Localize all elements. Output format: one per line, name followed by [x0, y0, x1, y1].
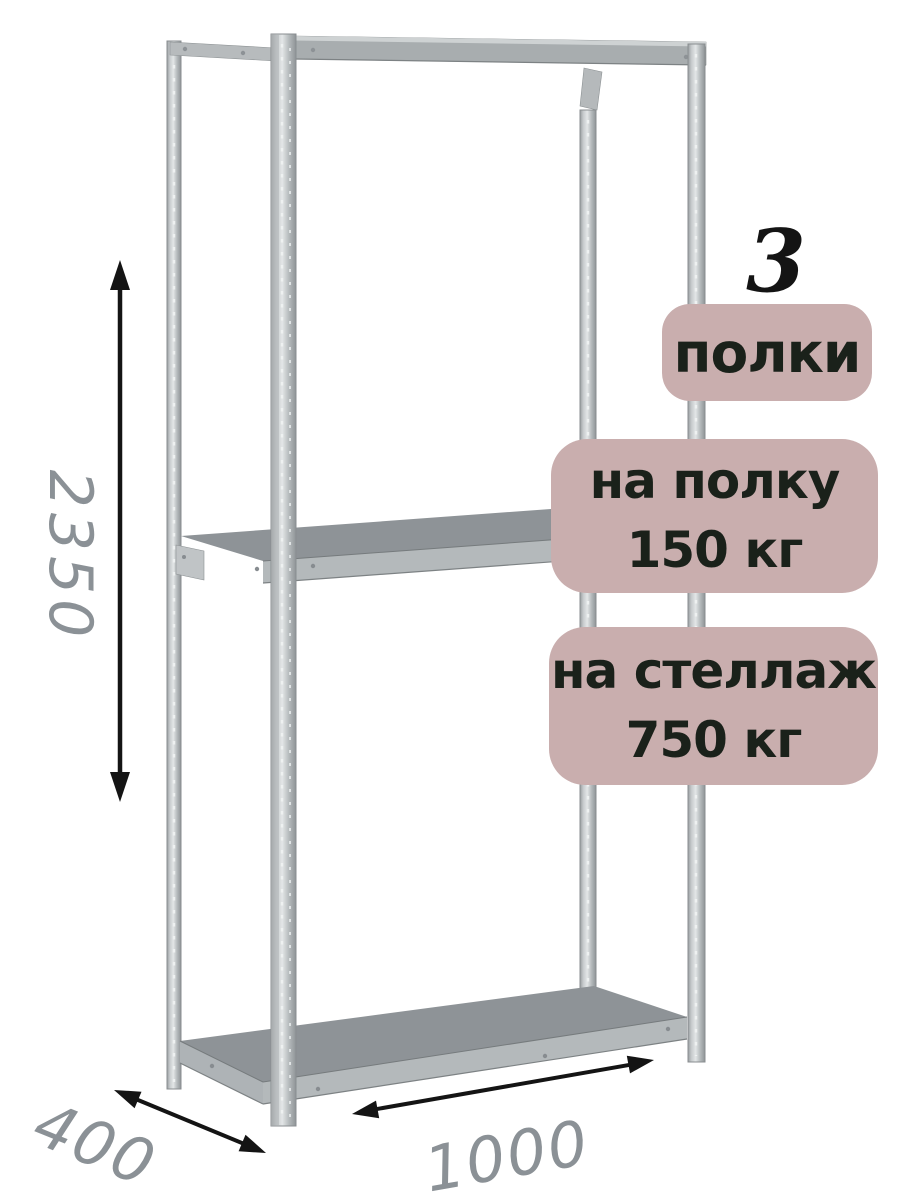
per-rack-load-line1: на стеллаж: [551, 637, 876, 706]
per-shelf-load-line2: 150 кг: [627, 516, 803, 585]
height-arrow: [110, 260, 130, 802]
per-rack-load-badge: на стеллаж 750 кг: [549, 627, 878, 785]
rack-bottom-shelf: [180, 986, 687, 1104]
product-image: 2350 400 1000 3 полки на полку 150 кг на…: [0, 0, 900, 1200]
shelf-count-value: 3: [746, 220, 806, 306]
per-rack-load-line2: 750 кг: [626, 706, 802, 775]
rack-top-shelf: [170, 36, 706, 110]
shelves-badge-label: полки: [674, 321, 861, 385]
height-dimension-label: 2350: [35, 470, 105, 643]
shelving-rack-illustration: [0, 0, 900, 1200]
per-shelf-load-line1: на полку: [590, 447, 840, 516]
per-shelf-load-badge: на полку 150 кг: [551, 439, 878, 593]
shelves-badge: полки: [662, 304, 872, 401]
rack-front-left-post: [271, 34, 296, 1126]
